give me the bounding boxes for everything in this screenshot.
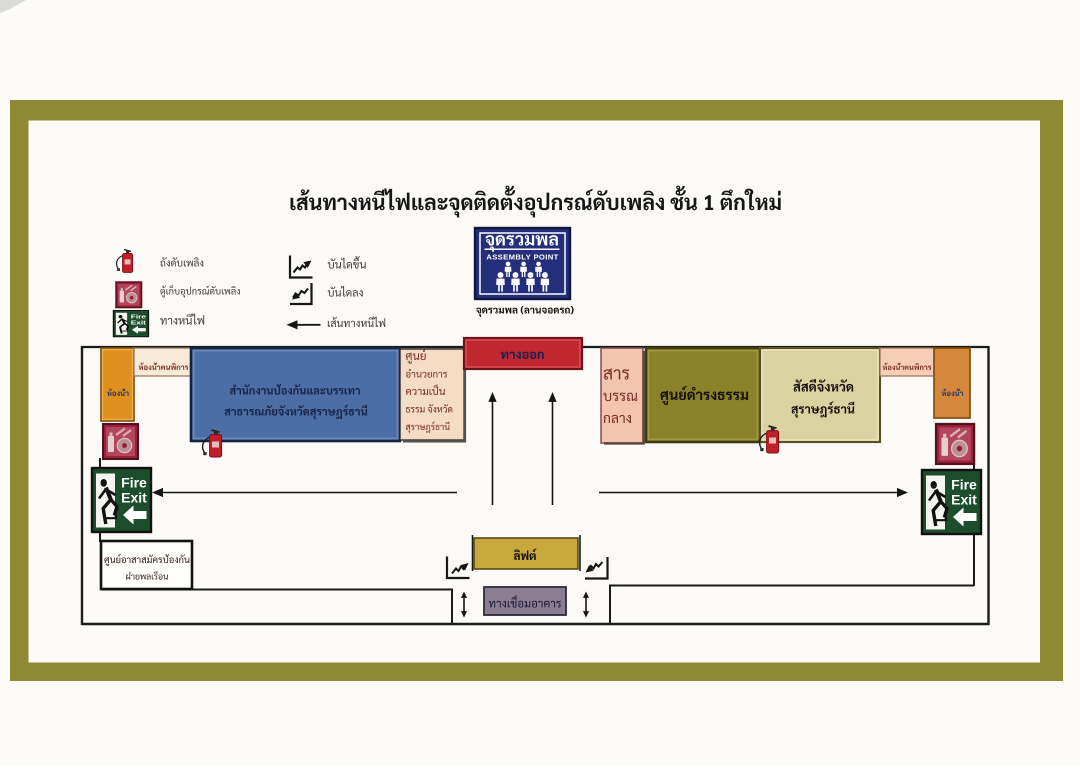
svg-text:ASSEMBLY POINT: ASSEMBLY POINT	[486, 253, 558, 262]
